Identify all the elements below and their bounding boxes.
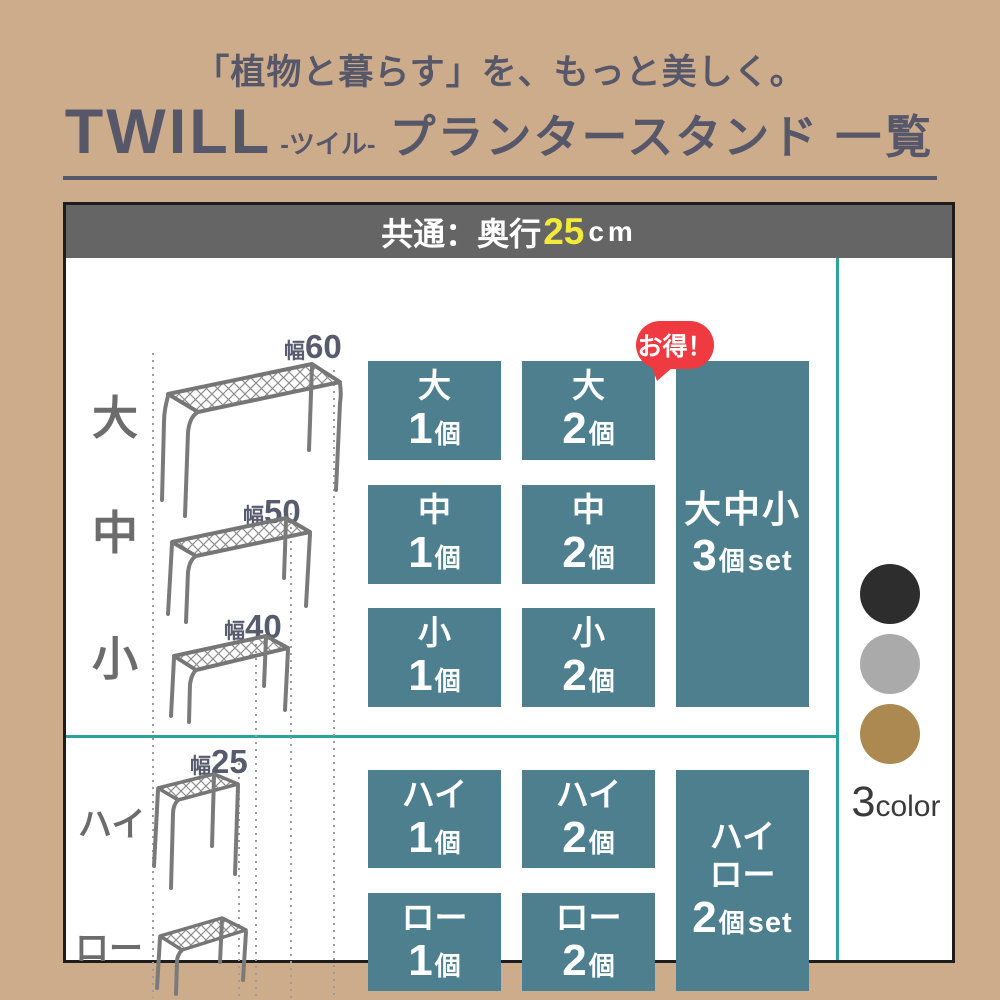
tile-count-unit: 個 (719, 909, 745, 938)
page-subtitle: 「植物と暮らす」を、もっと美しく。 (0, 44, 1000, 95)
color-count-label: 3color (840, 778, 952, 827)
deal-badge[interactable]: お得！ (636, 321, 714, 369)
color-swatch-gold (860, 704, 920, 764)
tile-count: 2個 (562, 405, 615, 453)
large-stand-illustration (146, 350, 346, 518)
tile-count: 1個 (408, 405, 461, 453)
spec-unit: cm (588, 216, 636, 248)
color-swatch-gray (860, 634, 920, 694)
title-divider (63, 176, 937, 180)
medium-stand-illustration (154, 506, 316, 624)
page-title: TWILL -ツイル- プランタースタンド 一覧 (0, 96, 1000, 168)
row-label-large: 大 (92, 395, 138, 441)
tile-count-unit: 個 (589, 667, 615, 696)
tile-count: 1個 (408, 814, 461, 862)
tile-size-label: 大 (572, 367, 605, 405)
title-suffix: 一覧 (835, 101, 935, 167)
tile-count: 1個 (408, 937, 461, 985)
set-title: 大中小 (684, 488, 801, 532)
tile-count-unit: 個 (589, 544, 615, 573)
product-tile-high-2[interactable]: ハイ 2個 (522, 770, 655, 868)
row-label-medium: 中 (92, 510, 138, 556)
set-line2: ロー (710, 856, 776, 894)
color-count-number: 3 (852, 778, 876, 826)
product-tile-small-2[interactable]: 小 2個 (522, 608, 655, 707)
tile-count-unit: 個 (435, 952, 461, 981)
color-swatch-black (860, 564, 920, 624)
tile-count-unit: 個 (435, 420, 461, 449)
tile-count-number: 3 (692, 532, 716, 580)
tile-count: 1個 (408, 529, 461, 577)
tile-set-suffix: set (748, 908, 793, 940)
vertical-separator (836, 258, 839, 960)
tile-size-label: ハイ (556, 776, 621, 814)
tile-count-number: 2 (562, 937, 586, 985)
product-tile-high-low-set[interactable]: ハイ ロー 2個set (676, 770, 809, 991)
tile-size-label: ロー (402, 899, 468, 937)
tile-count: 2個 (562, 529, 615, 577)
page: { "header": { "subtitle": "「植物と暮らす」を、もっと… (0, 0, 1000, 1000)
tile-size-label: 小 (572, 614, 605, 652)
tile-size-label: 中 (418, 491, 451, 529)
product-tile-small-1[interactable]: 小 1個 (368, 608, 501, 707)
tile-size-label: 小 (418, 614, 451, 652)
high-stand-illustration (146, 766, 246, 894)
product-name: プランタースタンド (390, 101, 820, 167)
panel-content: 大 中 小 ハイ ロー 幅60 幅50 幅40 幅25 (66, 258, 952, 960)
tile-count: 2個 (562, 937, 615, 985)
tile-count: 3個set (692, 532, 792, 580)
lineup-panel: 共通：奥行25cm 大 中 小 ハイ ロー 幅60 幅50 幅40 幅25 (63, 202, 955, 963)
tile-count: 1個 (408, 652, 461, 700)
tile-count-unit: 個 (435, 667, 461, 696)
spec-bar: 共通：奥行25cm (66, 205, 952, 258)
horizontal-separator (66, 735, 836, 738)
color-count-text: color (875, 790, 940, 823)
tile-set-suffix: set (748, 546, 793, 578)
tile-count-number: 2 (562, 529, 586, 577)
tile-count-number: 2 (562, 405, 586, 453)
tile-count-number: 2 (562, 814, 586, 862)
set-line1: ハイ (710, 818, 775, 856)
small-stand-illustration (158, 626, 298, 724)
tile-count: 2個 (562, 814, 615, 862)
tile-count-number: 1 (408, 652, 432, 700)
product-tile-medium-1[interactable]: 中 1個 (368, 485, 501, 584)
tile-count: 2個 (562, 652, 615, 700)
product-tile-high-1[interactable]: ハイ 1個 (368, 770, 501, 868)
tile-count-number: 1 (408, 937, 432, 985)
product-tile-low-1[interactable]: ロー 1個 (368, 893, 501, 991)
tile-count-number: 2 (562, 652, 586, 700)
tile-size-label: 中 (572, 491, 605, 529)
tile-count-unit: 個 (719, 547, 745, 576)
product-tile-large-2[interactable]: 大 2個 (522, 361, 655, 460)
product-tile-low-2[interactable]: ロー 2個 (522, 893, 655, 991)
tile-count-number: 1 (408, 529, 432, 577)
low-stand-illustration (146, 910, 250, 996)
tile-count: 2個set (692, 894, 792, 942)
spec-prefix: 共通：奥行 (381, 209, 541, 255)
spec-depth-value: 25 (543, 211, 584, 253)
tile-count-unit: 個 (435, 829, 461, 858)
tile-count-number: 1 (408, 814, 432, 862)
tile-count-number: 1 (408, 405, 432, 453)
row-label-small: 小 (92, 636, 138, 682)
product-tile-medium-2[interactable]: 中 2個 (522, 485, 655, 584)
tile-size-label: 大 (418, 367, 451, 405)
row-label-low: ロー (75, 932, 143, 966)
tile-count-unit: 個 (589, 829, 615, 858)
product-tile-3-set[interactable]: 大中小 3個set (676, 361, 809, 707)
tile-count-unit: 個 (589, 420, 615, 449)
product-tile-large-1[interactable]: 大 1個 (368, 361, 501, 460)
tile-size-label: ロー (556, 899, 622, 937)
brand-name: TWILL (65, 96, 272, 168)
tile-size-label: ハイ (402, 776, 467, 814)
row-label-high: ハイ (78, 808, 145, 842)
brand-reading: -ツイル- (280, 124, 375, 161)
tile-count-unit: 個 (589, 952, 615, 981)
tile-count-unit: 個 (435, 544, 461, 573)
tile-count-number: 2 (692, 894, 716, 942)
